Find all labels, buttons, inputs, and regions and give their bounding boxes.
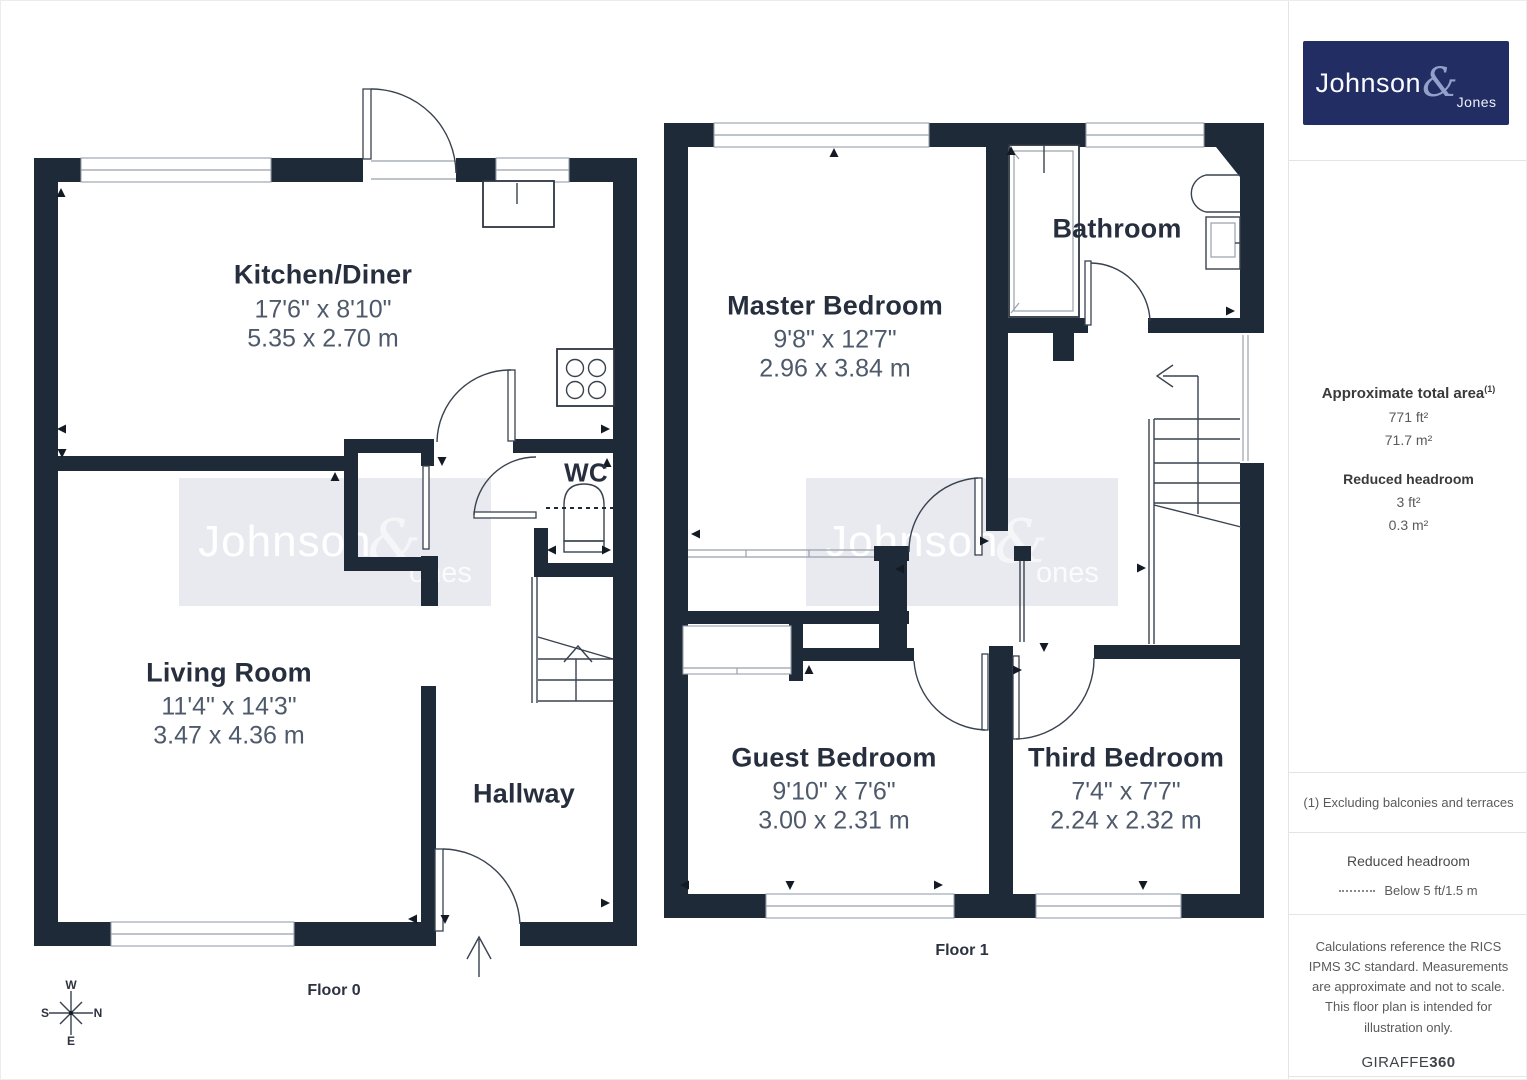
room-label-master-bedroom: Master Bedroom <box>727 291 943 322</box>
total-area-ft: 771 ft² <box>1289 409 1527 425</box>
floorplan-page: Johnson&ones Johnson&ones <box>0 0 1527 1080</box>
compass-south-label: S <box>41 1006 49 1020</box>
compass-north-label: N <box>94 1006 103 1020</box>
compass-icon <box>49 991 93 1035</box>
room-dim-imperial: 9'8" x 12'7" <box>773 326 896 355</box>
sidebar-legend-section: Reduced headroom Below 5 ft/1.5 m <box>1289 833 1527 915</box>
hob-icon <box>557 349 614 406</box>
credit-bold: 360 <box>1429 1054 1455 1071</box>
room-dim-metric: 5.35 x 2.70 m <box>247 325 398 354</box>
johnson-jones-logo: Johnson&Jones <box>1303 41 1509 125</box>
floorplans-drawing <box>1 1 1288 1080</box>
floor1-caption: Floor 1 <box>935 942 988 960</box>
logo-ampersand-icon: & <box>1422 60 1458 106</box>
total-area-m: 71.7 m² <box>1289 432 1527 448</box>
footnote-text: (1) Excluding balconies and terraces <box>1289 795 1527 810</box>
reduced-headroom-m: 0.3 m² <box>1289 517 1527 533</box>
room-dim-imperial: 11'4" x 14'3" <box>161 693 296 722</box>
credit-normal: GIRAFFE <box>1361 1054 1429 1071</box>
room-dim-metric: 3.47 x 4.36 m <box>153 722 304 751</box>
room-dim-imperial: 7'4" x 7'7" <box>1071 778 1180 807</box>
legend-label: Below 5 ft/1.5 m <box>1384 883 1477 898</box>
total-area-title: Approximate total area(1) <box>1289 384 1527 402</box>
reduced-headroom-ft: 3 ft² <box>1289 494 1527 510</box>
total-area-title-text: Approximate total area <box>1322 385 1485 402</box>
logo-text-primary: Johnson <box>1315 68 1421 99</box>
info-sidebar: Johnson&Jones Approximate total area(1) … <box>1288 1 1527 1080</box>
room-dim-metric: 3.00 x 2.31 m <box>758 807 909 836</box>
sidebar-logo-section: Johnson&Jones <box>1289 1 1527 161</box>
room-dim-imperial: 9'10" x 7'6" <box>772 778 895 807</box>
stairs-floor1-icon <box>1149 335 1248 644</box>
bathroom-toilet-icon <box>1206 217 1240 269</box>
kitchen-sink-icon <box>483 181 554 227</box>
sidebar-area-section: Approximate total area(1) 771 ft² 71.7 m… <box>1289 161 1527 773</box>
toilet-icon <box>564 484 604 552</box>
room-label-guest-bedroom: Guest Bedroom <box>731 743 936 774</box>
room-dim-metric: 2.24 x 2.32 m <box>1050 807 1201 836</box>
guest-closet-icon <box>683 626 791 674</box>
stairs-floor0-icon <box>532 577 613 703</box>
entrance-arrow-icon <box>467 937 491 977</box>
legend-title: Reduced headroom <box>1289 853 1527 869</box>
compass-west-label: W <box>65 978 76 992</box>
giraffe360-credit: GIRAFFE360 <box>1289 1054 1527 1071</box>
dashed-line-key-icon <box>1339 890 1375 892</box>
sidebar-footnote-section: (1) Excluding balconies and terraces <box>1289 773 1527 833</box>
room-label-bathroom: Bathroom <box>1052 214 1181 245</box>
sidebar-disclaimer-section: Calculations reference the RICS IPMS 3C … <box>1289 915 1527 1077</box>
logo-text-secondary: Jones <box>1457 94 1497 110</box>
total-area-footnote-ref: (1) <box>1484 384 1495 394</box>
reduced-headroom-title: Reduced headroom <box>1289 471 1527 487</box>
legend-row: Below 5 ft/1.5 m <box>1289 883 1527 898</box>
bathroom-sink-icon <box>1191 175 1240 212</box>
room-dim-imperial: 17'6" x 8'10" <box>254 296 391 325</box>
disclaimer-text: Calculations reference the RICS IPMS 3C … <box>1289 937 1527 1038</box>
room-label-hallway: Hallway <box>473 779 575 810</box>
room-label-third-bedroom: Third Bedroom <box>1028 743 1224 774</box>
compass-east-label: E <box>67 1034 75 1048</box>
floor0-caption: Floor 0 <box>307 982 360 1000</box>
room-dim-metric: 2.96 x 3.84 m <box>759 355 910 384</box>
room-label-kitchen-diner: Kitchen/Diner <box>234 260 412 291</box>
room-label-wc: WC <box>564 458 608 489</box>
room-label-living-room: Living Room <box>146 658 312 689</box>
